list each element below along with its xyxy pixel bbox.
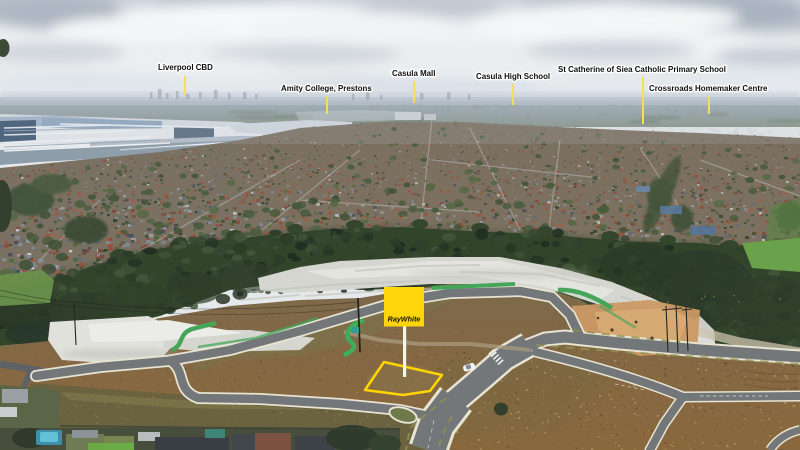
svg-text:RayWhite: RayWhite [388,315,421,324]
